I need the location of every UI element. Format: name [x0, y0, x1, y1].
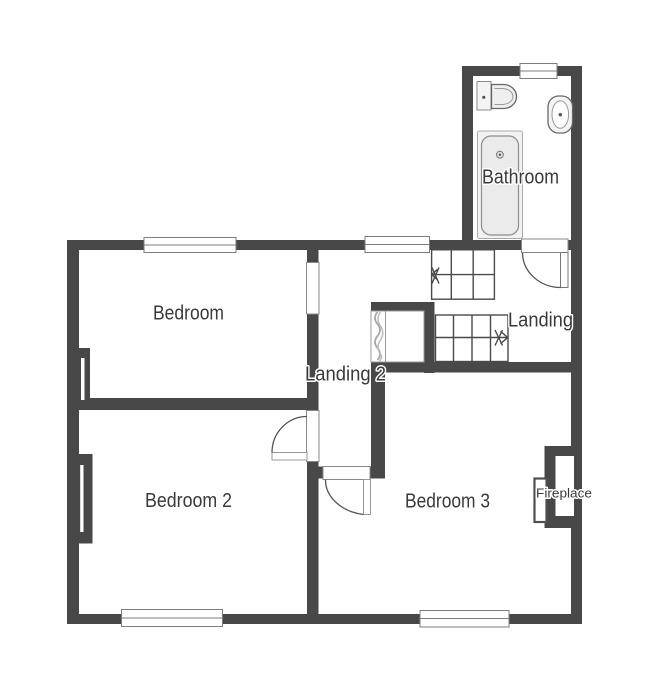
svg-text:Landing: Landing	[508, 310, 573, 332]
svg-text:Bathroom: Bathroom	[482, 167, 559, 189]
svg-text:Bedroom: Bedroom	[153, 303, 224, 325]
svg-text:Fireplace: Fireplace	[536, 487, 592, 501]
svg-text:Bedroom 3: Bedroom 3	[405, 491, 490, 513]
svg-text:Landing 2: Landing 2	[305, 364, 386, 386]
svg-text:Bedroom 2: Bedroom 2	[145, 490, 232, 512]
